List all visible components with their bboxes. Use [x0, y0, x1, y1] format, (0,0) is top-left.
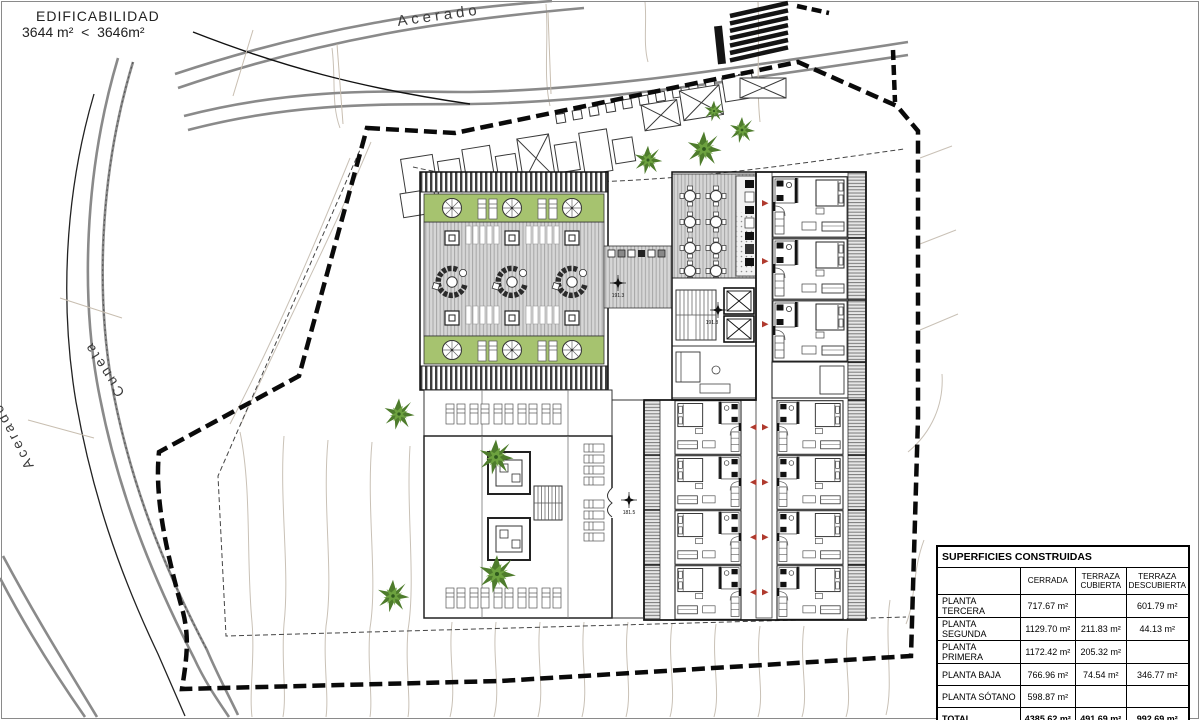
cell-terraza-descubierta	[1126, 641, 1189, 664]
spa-room	[488, 518, 530, 560]
column-header-cerrada: CERRADA	[1020, 568, 1075, 595]
cell-terraza-cubierta	[1076, 595, 1126, 618]
pool-stairs	[534, 486, 562, 520]
cell-cerrada: 1172.42 m²	[1020, 641, 1075, 664]
surfaces-table-header-row: CERRADA TERRAZA CUBIERTA TERRAZA DESCUBI…	[937, 568, 1189, 595]
row-name: PLANTA BAJA	[937, 664, 1020, 686]
cell-terraza-descubierta: 992.69 m²	[1126, 708, 1189, 720]
edificability-note: EDIFICABILIDAD 3644 m² < 3646m²	[22, 8, 160, 40]
site-plan-canvas: 191.3 191.3 181.5 Acerado Cuneta Acerado…	[0, 0, 1200, 720]
elevation-marker-label: 191.3	[612, 293, 625, 299]
cell-terraza-cubierta: 491.69 m²	[1076, 708, 1126, 720]
row-name: PLANTA PRIMERA	[937, 641, 1020, 664]
cell-terraza-descubierta	[1126, 686, 1189, 708]
restaurant-terrace	[672, 174, 756, 281]
cell-terraza-cubierta: 211.83 m²	[1076, 618, 1126, 641]
surfaces-table: SUPERFICIES CONSTRUIDAS CERRADA TERRAZA …	[936, 545, 1190, 720]
cell-cerrada: 717.67 m²	[1020, 595, 1075, 618]
table-row: PLANTA PRIMERA 1172.42 m² 205.32 m²	[937, 641, 1189, 664]
cell-terraza-descubierta: 44.13 m²	[1126, 618, 1189, 641]
column-header-terraza-cubierta: TERRAZA CUBIERTA	[1076, 568, 1126, 595]
row-name: PLANTA SÓTANO	[937, 686, 1020, 708]
row-name: TOTAL	[937, 708, 1020, 720]
cell-cerrada: 766.96 m²	[1020, 664, 1075, 686]
table-row: PLANTA SÓTANO 598.87 m²	[937, 686, 1189, 708]
cell-terraza-cubierta: 205.32 m²	[1076, 641, 1126, 664]
umbrella-icon	[443, 199, 462, 218]
column-header-blank	[937, 568, 1020, 595]
edificability-comparison: 3644 m² < 3646m²	[22, 24, 160, 40]
column-header-terraza-descubierta: TERRAZA DESCUBIERTA	[1126, 568, 1189, 595]
cell-terraza-cubierta: 74.54 m²	[1076, 664, 1126, 686]
cell-terraza-descubierta: 601.79 m²	[1126, 595, 1189, 618]
table-row: PLANTA TERCERA 717.67 m² 601.79 m²	[937, 595, 1189, 618]
surfaces-table-title-row: SUPERFICIES CONSTRUIDAS	[937, 546, 1189, 568]
cell-terraza-cubierta	[1076, 686, 1126, 708]
cell-cerrada: 598.87 m²	[1020, 686, 1075, 708]
table-row: PLANTA BAJA 766.96 m² 74.54 m² 346.77 m²	[937, 664, 1189, 686]
table-row-total: TOTAL 4385.62 m² 491.69 m² 992.69 m²	[937, 708, 1189, 720]
elevation-marker-label: 191.3	[706, 320, 719, 326]
cell-cerrada: 4385.62 m²	[1020, 708, 1075, 720]
cell-cerrada: 1129.70 m²	[1020, 618, 1075, 641]
cell-terraza-descubierta: 346.77 m²	[1126, 664, 1189, 686]
stair-elevator-core	[672, 278, 756, 398]
elevation-marker-label: 181.5	[623, 510, 636, 516]
roof-terrace	[420, 172, 608, 390]
edificability-title: EDIFICABILIDAD	[22, 8, 160, 24]
corridor	[756, 172, 772, 618]
table-row: PLANTA SEGUNDA 1129.70 m² 211.83 m² 44.1…	[937, 618, 1189, 641]
row-name: PLANTA SEGUNDA	[937, 618, 1020, 641]
row-name: PLANTA TERCERA	[937, 595, 1020, 618]
surfaces-table-title: SUPERFICIES CONSTRUIDAS	[937, 546, 1189, 568]
